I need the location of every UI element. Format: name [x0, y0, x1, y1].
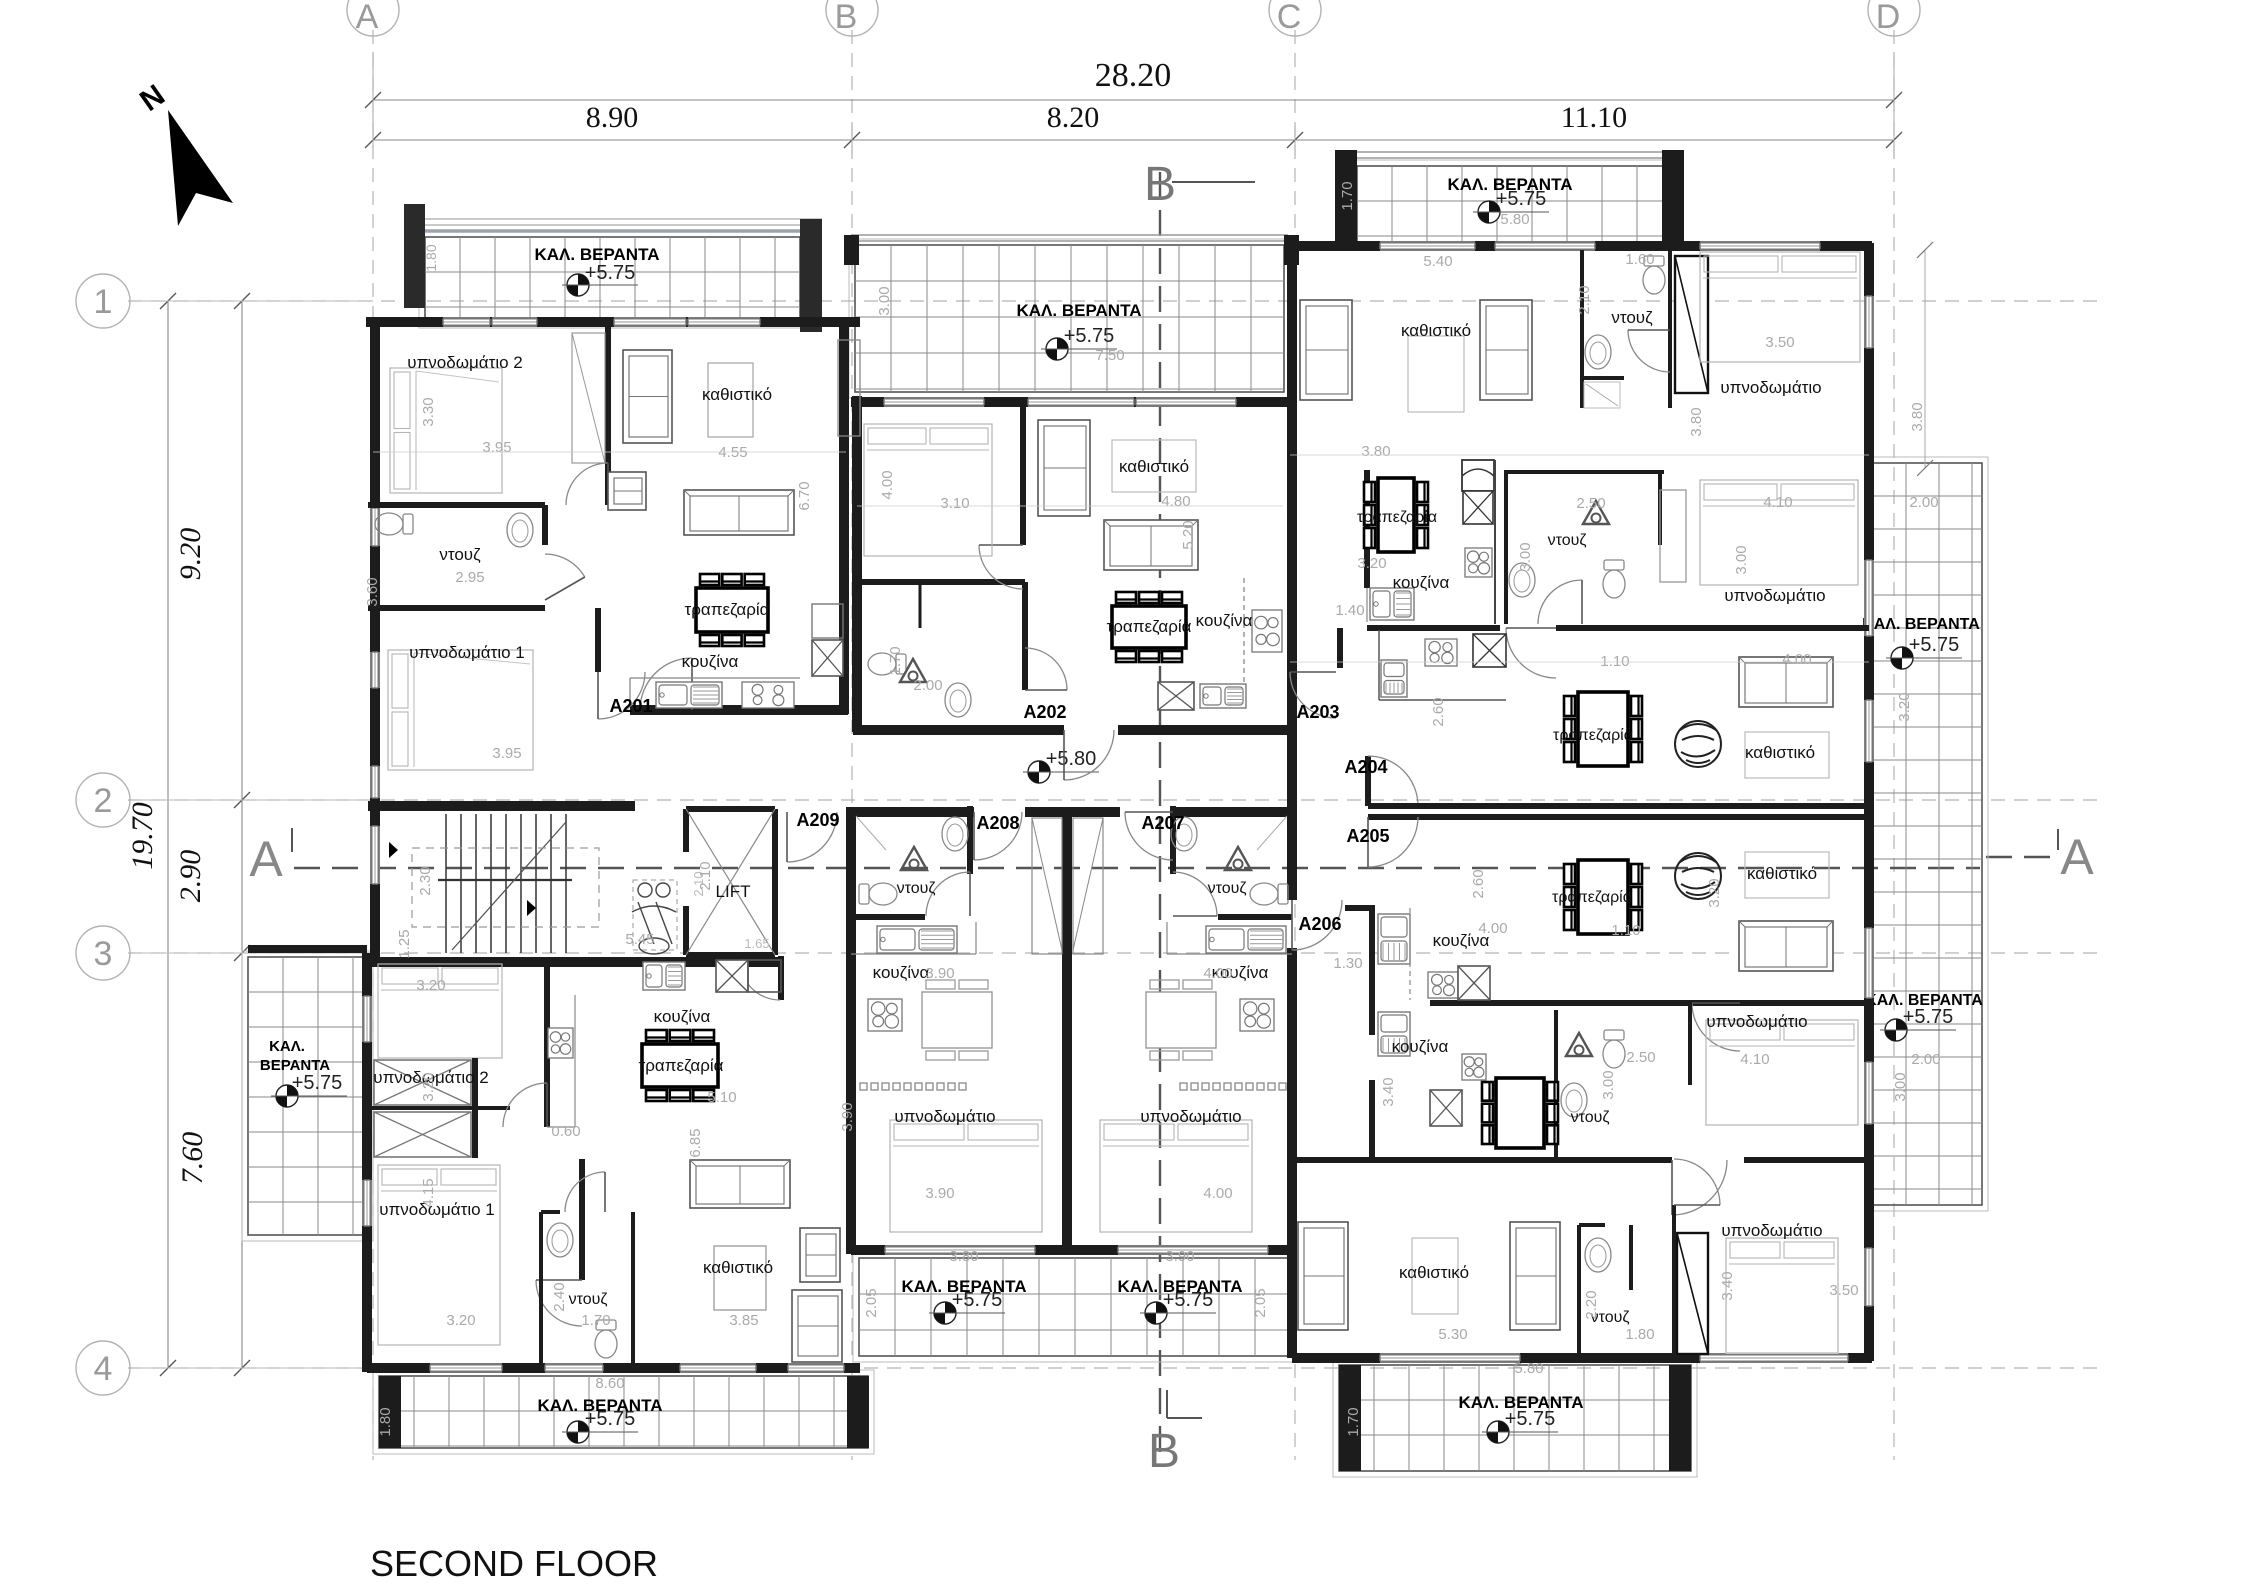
svg-text:9.20: 9.20 [174, 528, 207, 581]
svg-text:+5.75: +5.75 [1909, 634, 1960, 656]
svg-text:ντουζ: ντουζ [1208, 880, 1247, 897]
svg-text:3.00: 3.00 [876, 286, 893, 315]
svg-text:4.00: 4.00 [1203, 1185, 1232, 1202]
svg-text:A202: A202 [1023, 702, 1066, 722]
svg-text:3.80: 3.80 [949, 1248, 978, 1265]
svg-text:4.00: 4.00 [879, 470, 896, 499]
svg-text:καθιστικό: καθιστικό [1747, 864, 1817, 883]
svg-text:4.15: 4.15 [420, 1178, 437, 1207]
svg-text:4.80: 4.80 [1161, 493, 1190, 510]
svg-text:2.30: 2.30 [417, 866, 434, 895]
svg-text:A203: A203 [1296, 702, 1339, 722]
svg-text:3.00: 3.00 [1600, 1070, 1617, 1099]
svg-text:υπνοδωμάτιο: υπνοδωμάτιο [1721, 1221, 1822, 1240]
svg-text:τραπεζαρία: τραπεζαρία [1107, 617, 1192, 636]
svg-text:1.80: 1.80 [377, 1407, 394, 1436]
svg-text:3.60: 3.60 [364, 577, 381, 606]
svg-text:3.20: 3.20 [446, 1312, 475, 1329]
svg-text:28.20: 28.20 [1095, 57, 1172, 94]
svg-text:3.95: 3.95 [482, 439, 511, 456]
svg-text:3.00: 3.00 [1733, 545, 1750, 574]
svg-text:κουζίνα: κουζίνα [873, 963, 930, 982]
svg-text:5.30: 5.30 [1438, 1326, 1467, 1343]
svg-text:5.80: 5.80 [1500, 211, 1529, 228]
svg-text:καθιστικό: καθιστικό [1401, 321, 1471, 340]
svg-text:1.25: 1.25 [396, 929, 413, 958]
svg-text:6.70: 6.70 [796, 481, 813, 510]
svg-text:ντουζ: ντουζ [897, 880, 936, 897]
svg-text:1.10: 1.10 [1600, 653, 1629, 670]
svg-text:5.45: 5.45 [625, 931, 654, 948]
svg-text:ντουζ: ντουζ [1548, 532, 1587, 549]
svg-text:A207: A207 [1141, 813, 1184, 833]
svg-text:2.95: 2.95 [455, 569, 484, 586]
svg-text:υπνοδωμάτιο: υπνοδωμάτιο [1724, 586, 1825, 605]
svg-text:A205: A205 [1346, 826, 1389, 846]
svg-text:τραπεζαρία: τραπεζαρία [1553, 727, 1633, 744]
svg-text:1.30: 1.30 [1333, 955, 1362, 972]
svg-text:2.40: 2.40 [551, 1282, 568, 1311]
svg-text:κουζίνα: κουζίνα [1196, 611, 1253, 630]
svg-text:υπνοδωμάτιο: υπνοδωμάτιο [1706, 1012, 1807, 1031]
svg-text:B: B [1148, 1425, 1180, 1478]
svg-text:+5.75: +5.75 [585, 262, 636, 284]
svg-text:3.90: 3.90 [925, 965, 954, 982]
svg-text:+5.75: +5.75 [1903, 1006, 1954, 1028]
svg-text:2.10: 2.10 [1576, 285, 1593, 314]
svg-text:ντουζ: ντουζ [1571, 1109, 1610, 1126]
svg-text:A201: A201 [609, 696, 652, 716]
svg-text:καθιστικό: καθιστικό [702, 385, 772, 404]
svg-text:3.40: 3.40 [1719, 1271, 1736, 1300]
svg-text:3.20: 3.20 [416, 977, 445, 994]
svg-text:3.20: 3.20 [1357, 555, 1386, 572]
svg-text:LIFT: LIFT [716, 882, 751, 901]
svg-text:+5.75: +5.75 [1163, 1289, 1214, 1311]
svg-text:B: B [835, 0, 858, 36]
svg-text:+5.75: +5.75 [952, 1289, 1003, 1311]
svg-text:3.90: 3.90 [1165, 1248, 1194, 1265]
svg-text:+5.80: +5.80 [1046, 748, 1097, 770]
svg-text:7.50: 7.50 [1095, 347, 1124, 364]
svg-text:+5.75: +5.75 [1505, 1408, 1556, 1430]
svg-text:3.50: 3.50 [1829, 1282, 1858, 1299]
svg-text:+5.75: +5.75 [585, 1408, 636, 1430]
svg-text:5.10: 5.10 [707, 1089, 736, 1106]
svg-text:ΚΑΛ. ΒΕΡΑΝΤΑ: ΚΑΛ. ΒΕΡΑΝΤΑ [1862, 616, 1980, 633]
svg-text:6.85: 6.85 [687, 1128, 704, 1157]
svg-text:3.00: 3.00 [1892, 1072, 1909, 1101]
svg-text:2.90: 2.90 [174, 850, 207, 903]
svg-text:3.20: 3.20 [1896, 692, 1913, 721]
svg-text:τραπεζαρία: τραπεζαρία [639, 1056, 724, 1075]
svg-text:υπνοδωμάτιο 2: υπνοδωμάτιο 2 [407, 353, 522, 372]
svg-text:1.40: 1.40 [1335, 602, 1364, 619]
svg-text:2.00: 2.00 [1911, 1051, 1940, 1068]
svg-text:4: 4 [94, 1350, 113, 1388]
svg-text:2.10: 2.10 [697, 861, 714, 890]
svg-text:+5.75: +5.75 [292, 1072, 343, 1094]
svg-text:2.60: 2.60 [1470, 869, 1487, 898]
svg-text:υπνοδωμάτιο: υπνοδωμάτιο [1720, 378, 1821, 397]
svg-text:4.00: 4.00 [1203, 965, 1232, 982]
svg-text:A: A [2060, 829, 2094, 885]
svg-text:D: D [1876, 0, 1901, 36]
svg-text:1.70: 1.70 [1345, 1407, 1362, 1436]
svg-text:A209: A209 [796, 810, 839, 830]
svg-text:2.05: 2.05 [1252, 1288, 1269, 1317]
svg-text:4.10: 4.10 [1763, 494, 1792, 511]
svg-text:τραπεζαρία: τραπεζαρία [1552, 889, 1632, 906]
svg-text:A204: A204 [1344, 757, 1387, 777]
svg-text:1.80: 1.80 [423, 244, 439, 271]
svg-text:2.20: 2.20 [1583, 1290, 1600, 1319]
svg-text:1.70: 1.70 [887, 646, 904, 675]
svg-text:3: 3 [94, 935, 113, 973]
svg-text:1: 1 [94, 283, 113, 321]
svg-text:5.20: 5.20 [1180, 520, 1197, 549]
svg-text:8.90: 8.90 [586, 101, 639, 134]
svg-text:1.60: 1.60 [1625, 251, 1654, 268]
svg-text:κουζίνα: κουζίνα [682, 652, 739, 671]
svg-text:7.60: 7.60 [176, 1132, 209, 1185]
svg-text:5.80: 5.80 [1514, 1360, 1543, 1377]
svg-text:11.10: 11.10 [1561, 101, 1627, 134]
svg-text:+5.75: +5.75 [1496, 188, 1547, 210]
svg-text:2.50: 2.50 [1576, 495, 1605, 512]
svg-text:3.95: 3.95 [492, 745, 521, 762]
svg-text:SECOND FLOOR: SECOND FLOOR [370, 1543, 658, 1584]
svg-text:19.70: 19.70 [126, 802, 159, 870]
svg-text:καθιστικό: καθιστικό [703, 1258, 773, 1277]
svg-text:ΚΑΛ.: ΚΑΛ. [269, 1038, 305, 1055]
svg-text:3.90: 3.90 [925, 1185, 954, 1202]
svg-text:2.00: 2.00 [913, 677, 942, 694]
svg-text:υπνοδωμάτιο: υπνοδωμάτιο [1140, 1107, 1241, 1126]
svg-text:ντουζ: ντουζ [569, 1291, 608, 1308]
svg-text:2.50: 2.50 [1626, 1049, 1655, 1066]
svg-text:4.00: 4.00 [1478, 920, 1507, 937]
svg-text:1.65: 1.65 [744, 936, 769, 951]
svg-text:3.80: 3.80 [1688, 407, 1705, 436]
svg-text:3.80: 3.80 [1909, 402, 1926, 431]
svg-text:4.10: 4.10 [1740, 1051, 1769, 1068]
svg-text:καθιστικό: καθιστικό [1745, 743, 1815, 762]
svg-text:ντουζ: ντουζ [1611, 308, 1653, 327]
svg-text:A: A [249, 831, 283, 887]
svg-text:1.10: 1.10 [1611, 922, 1640, 939]
svg-text:κουζίνα: κουζίνα [654, 1007, 711, 1026]
svg-text:3.40: 3.40 [1380, 1077, 1397, 1106]
svg-text:3.20: 3.20 [420, 1072, 437, 1101]
svg-text:υπνοδωμάτιο: υπνοδωμάτιο [894, 1107, 995, 1126]
svg-text:5.40: 5.40 [1423, 253, 1452, 270]
svg-text:4.55: 4.55 [718, 444, 747, 461]
svg-text:3.10: 3.10 [940, 495, 969, 512]
svg-text:υπνοδωμάτιο 1: υπνοδωμάτιο 1 [379, 1200, 494, 1219]
svg-text:3.00: 3.00 [1517, 542, 1534, 571]
svg-text:8.60: 8.60 [595, 1375, 624, 1392]
svg-text:τραπεζαρία: τραπεζαρία [1357, 509, 1437, 526]
svg-text:0.60: 0.60 [551, 1123, 580, 1140]
svg-text:A206: A206 [1298, 914, 1341, 934]
svg-text:ντουζ: ντουζ [439, 545, 481, 564]
svg-text:3.90: 3.90 [839, 1102, 856, 1131]
svg-text:κουζίνα: κουζίνα [1392, 1037, 1449, 1056]
svg-text:2: 2 [94, 782, 113, 820]
svg-text:3.30: 3.30 [420, 397, 437, 426]
svg-text:3.50: 3.50 [1765, 334, 1794, 351]
svg-text:B: B [1144, 158, 1176, 211]
svg-text:8.20: 8.20 [1047, 101, 1100, 134]
svg-text:υπνοδωμάτιο 1: υπνοδωμάτιο 1 [409, 643, 524, 662]
svg-text:καθιστικό: καθιστικό [1119, 457, 1189, 476]
svg-text:τραπεζαρία: τραπεζαρία [685, 600, 770, 619]
svg-text:καθιστικό: καθιστικό [1399, 1263, 1469, 1282]
svg-text:1.80: 1.80 [1625, 1326, 1654, 1343]
svg-text:ΚΑΛ. ΒΕΡΑΝΤΑ: ΚΑΛ. ΒΕΡΑΝΤΑ [1017, 301, 1142, 320]
svg-text:+5.75: +5.75 [1064, 325, 1115, 347]
svg-text:C: C [1277, 0, 1302, 36]
svg-text:A: A [356, 0, 379, 36]
svg-text:3.80: 3.80 [1361, 443, 1390, 460]
svg-text:2.05: 2.05 [863, 1288, 880, 1317]
svg-text:4.00: 4.00 [1782, 651, 1811, 668]
svg-text:2.60: 2.60 [1430, 697, 1447, 726]
svg-text:1.70: 1.70 [1339, 181, 1356, 210]
svg-text:1.70: 1.70 [581, 1312, 610, 1329]
svg-text:κουζίνα: κουζίνα [1393, 573, 1450, 592]
svg-text:3.20: 3.20 [1706, 878, 1723, 907]
svg-text:2.00: 2.00 [1909, 494, 1938, 511]
svg-text:A208: A208 [976, 813, 1019, 833]
svg-text:3.85: 3.85 [729, 1312, 758, 1329]
